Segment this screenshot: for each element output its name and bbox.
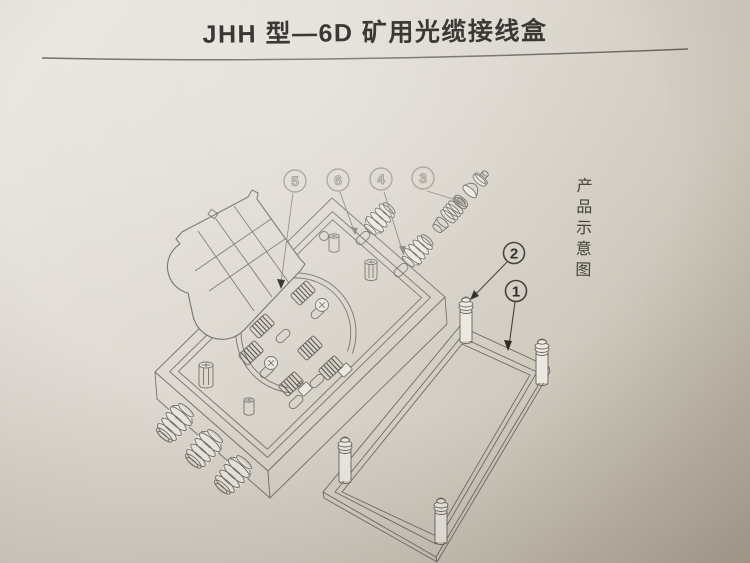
side-caption: 产品示意图 — [568, 177, 594, 282]
photographed-product-sheet: 5 6 4 3 2 1 JHH 型—6D 矿用光缆接线盒 产品示意图 — [0, 0, 750, 563]
photo-vignette — [0, 0, 750, 563]
exploded-diagram: 5 6 4 3 2 1 — [0, 0, 750, 563]
